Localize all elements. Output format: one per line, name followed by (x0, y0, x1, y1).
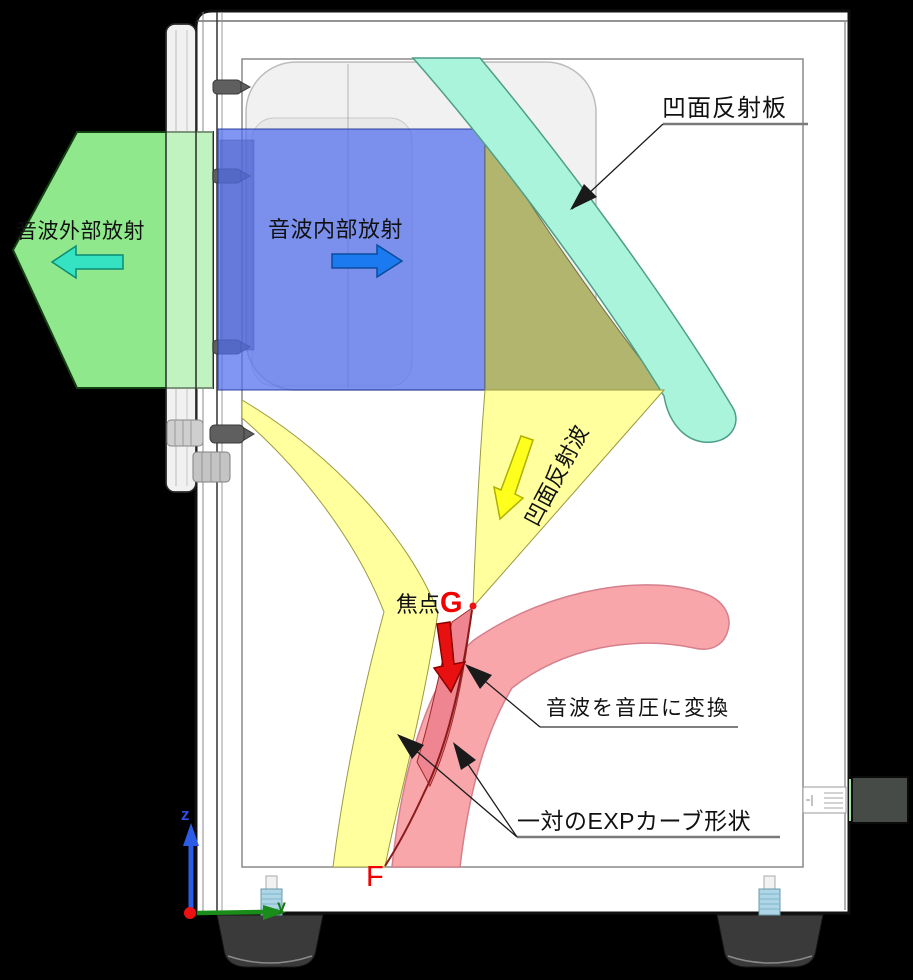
label-axis-z: z (181, 806, 190, 825)
slab-over-region-tint (166, 131, 213, 389)
label-convert-pressure: 音波を音圧に変換 (546, 697, 730, 720)
origin-dot (184, 907, 196, 919)
label-axis-y: y (277, 898, 286, 916)
label-mouth-letter: F (366, 862, 384, 894)
foot-left (217, 915, 323, 967)
label-focal-letter: G (440, 590, 463, 618)
focal-point-dot (470, 603, 477, 610)
label-internal-radiation: 音波内部放射 (268, 218, 403, 242)
label-exp-curves: 一対のEXPカーブ形状 (517, 809, 751, 834)
label-focal-point: 焦点 G (396, 590, 463, 618)
label-focal-prefix: 焦点 (396, 593, 440, 617)
terminal-box (852, 777, 908, 823)
foot-right (717, 915, 823, 967)
label-concave-reflector: 凹面反射板 (662, 96, 787, 122)
terminal-plate (803, 787, 846, 813)
speaker-cross-section-diagram: 凹面反射板 音波外部放射 音波内部放射 凹面反射波 焦点 G 音波を音圧に変換 … (0, 0, 913, 980)
diagram-drawing (0, 0, 913, 980)
label-external-radiation: 音波外部放射 (16, 220, 145, 243)
